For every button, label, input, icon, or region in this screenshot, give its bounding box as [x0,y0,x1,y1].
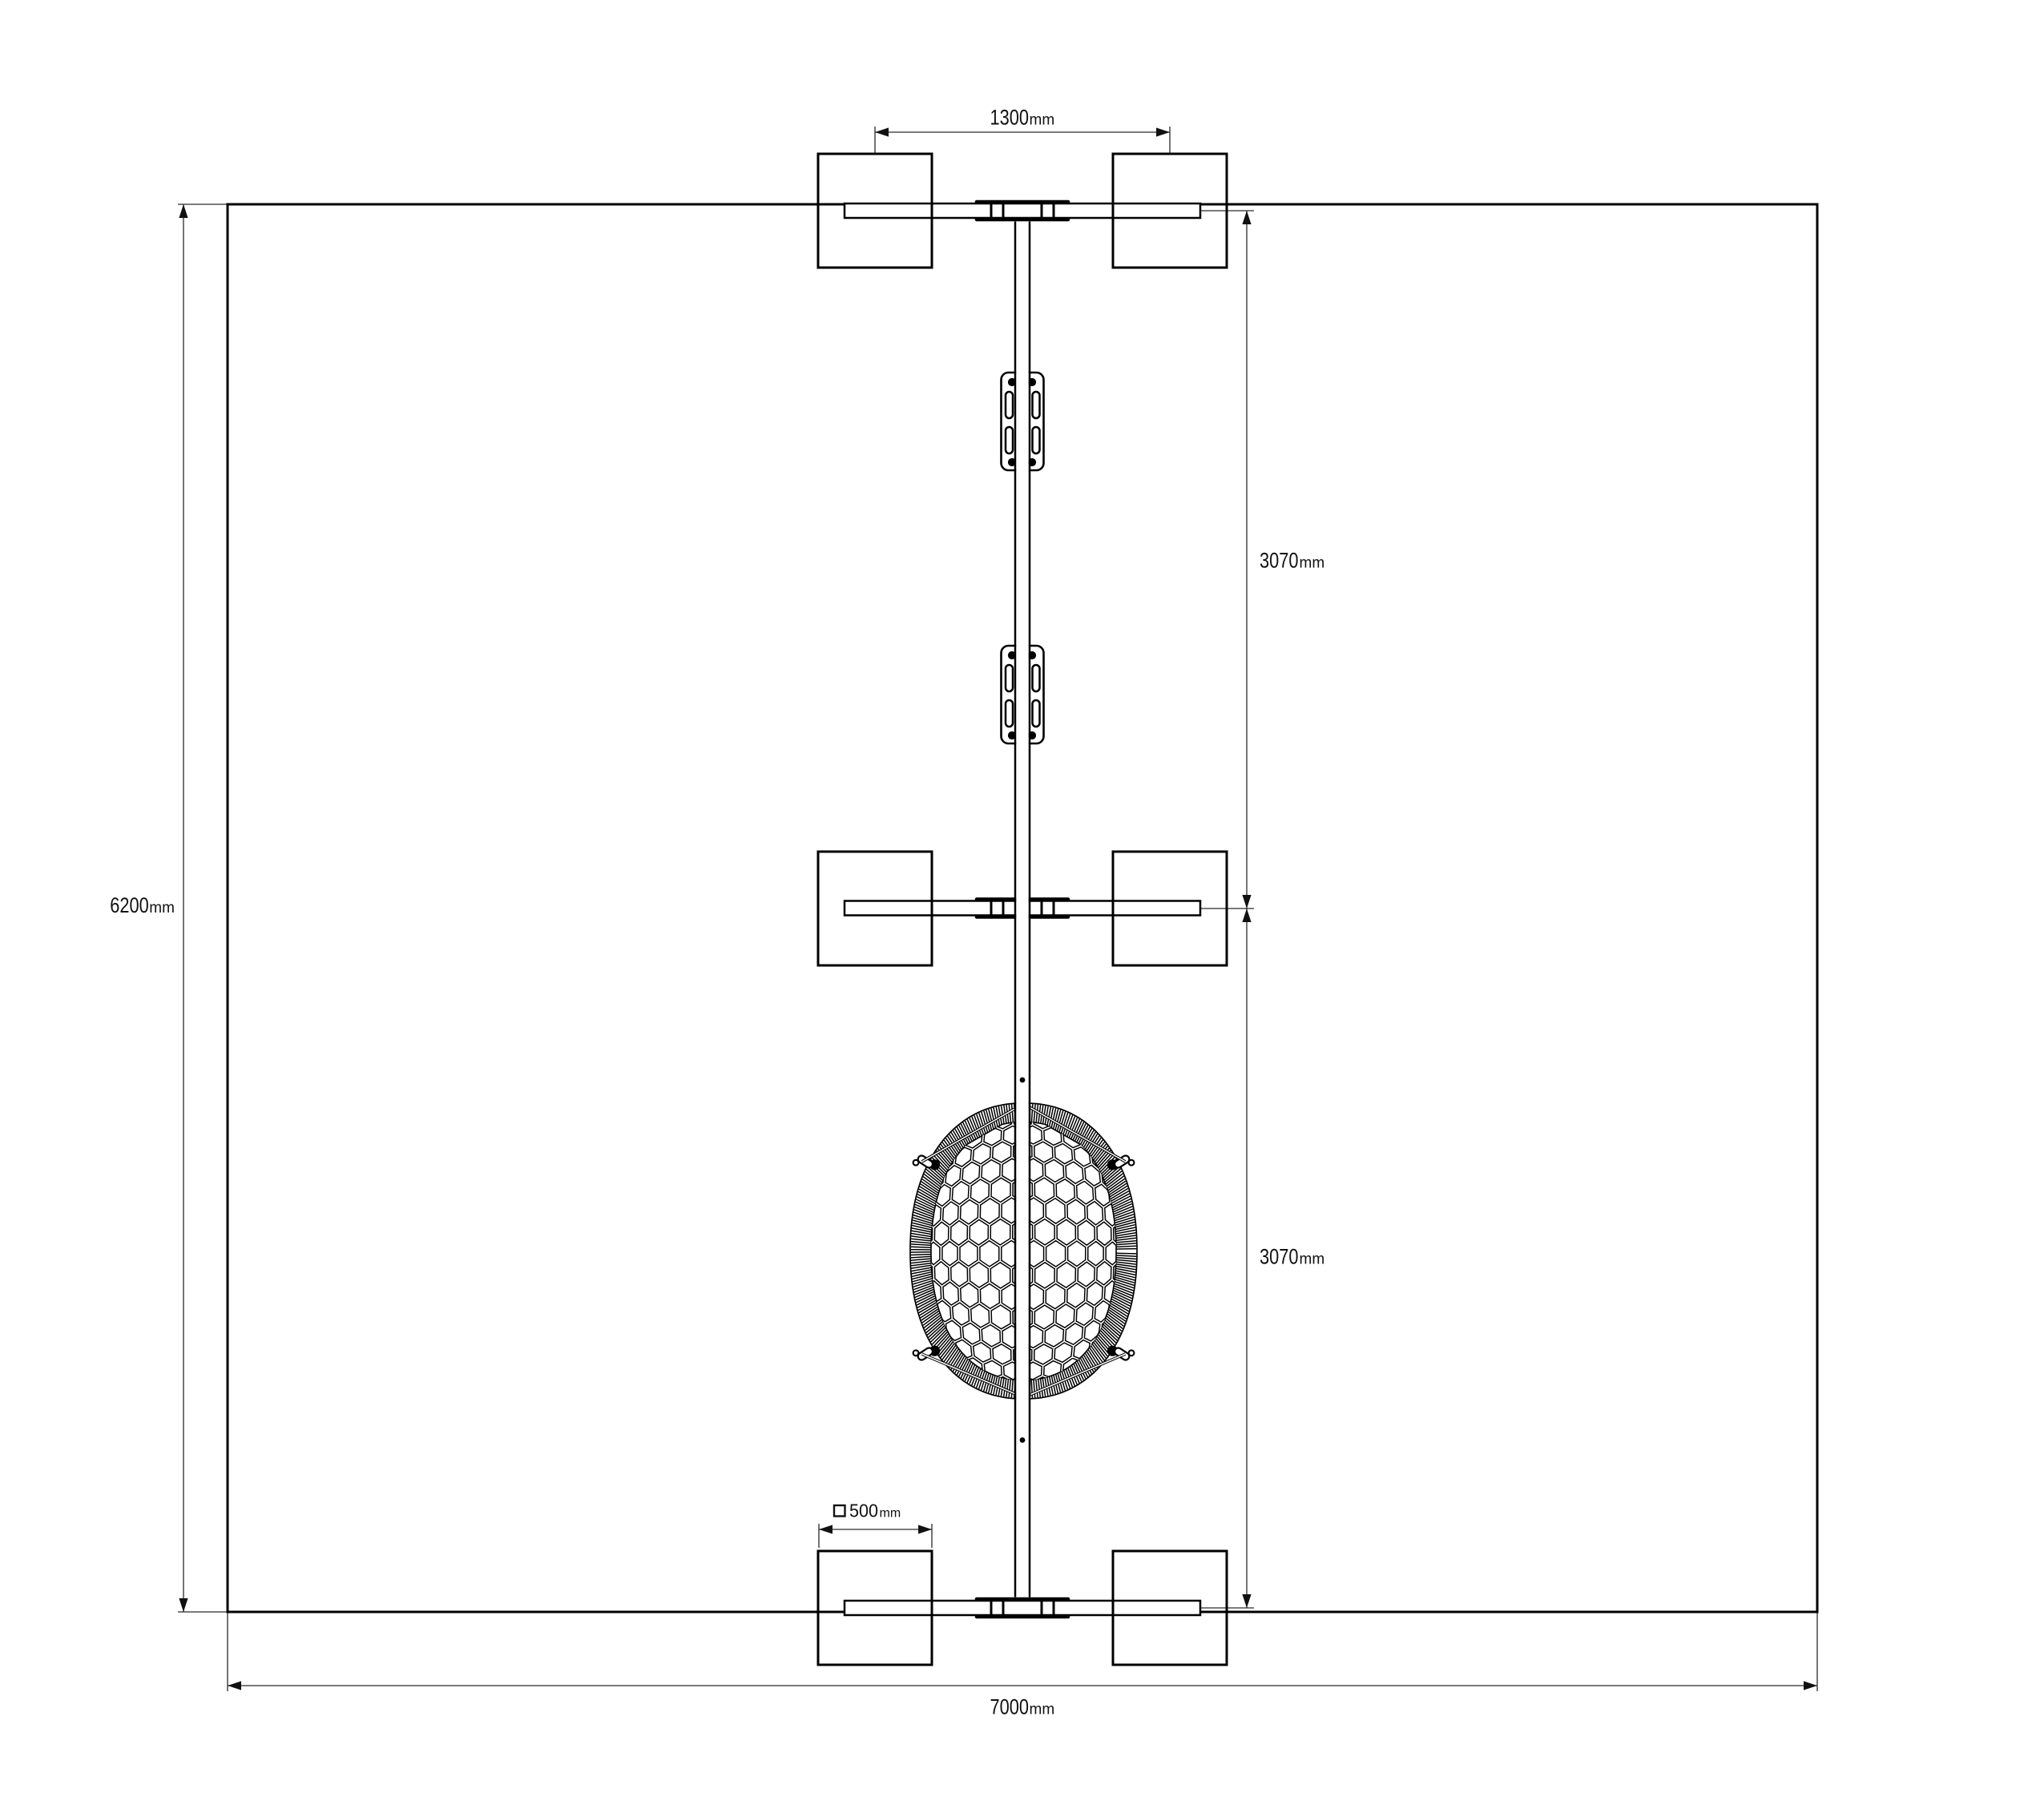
svg-text:7000: 7000 [990,1695,1030,1719]
svg-text:6200: 6200 [110,893,149,917]
svg-text:mm: mm [1030,112,1055,129]
svg-text:3070: 3070 [1260,1245,1299,1269]
svg-text:500: 500 [849,1501,878,1521]
svg-text:mm: mm [1300,1251,1325,1268]
svg-text:mm: mm [1300,555,1325,572]
svg-text:3070: 3070 [1260,549,1299,573]
svg-text:mm: mm [149,900,175,917]
svg-text:1300: 1300 [990,106,1030,130]
svg-text:mm: mm [1030,1702,1055,1718]
svg-text:mm: mm [880,1507,901,1521]
